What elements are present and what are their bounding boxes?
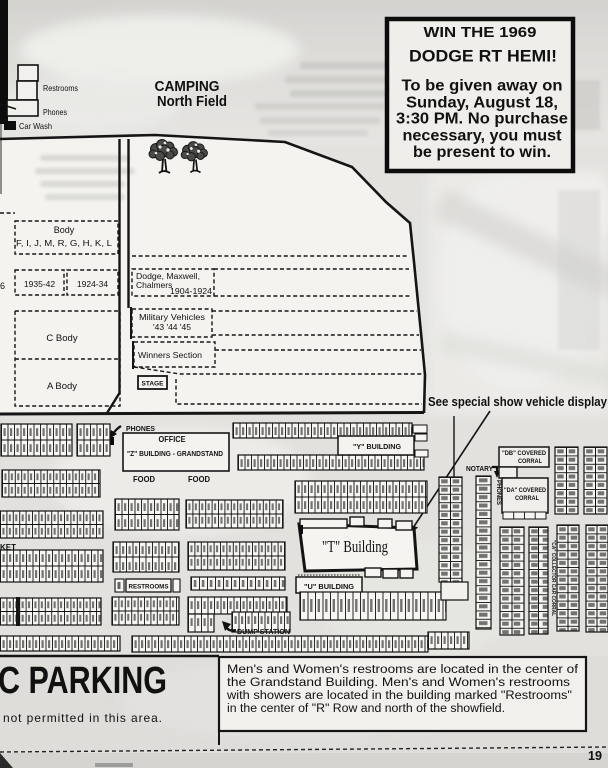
svg-text:6: 6 bbox=[0, 281, 5, 291]
svg-text:PHONES: PHONES bbox=[495, 480, 502, 505]
svg-text:Car Wash: Car Wash bbox=[19, 121, 52, 131]
svg-text:CORRAL: CORRAL bbox=[515, 495, 539, 502]
svg-text:1924-34: 1924-34 bbox=[77, 279, 108, 289]
svg-text:Phones: Phones bbox=[43, 107, 67, 117]
svg-text:with showers are located in th: with showers are located in the building… bbox=[226, 690, 572, 702]
svg-text:NOTARY: NOTARY bbox=[466, 466, 493, 473]
svg-text:F, I, J, M, R, G, H, K, L: F, I, J, M, R, G, H, K, L bbox=[16, 238, 112, 248]
svg-text:To be given away on: To be given away on bbox=[402, 78, 563, 95]
svg-text:See special show vehicle displ: See special show vehicle display bbox=[428, 394, 608, 409]
svg-text:RESTROOMS: RESTROOMS bbox=[129, 584, 169, 591]
svg-text:CAMPING: CAMPING bbox=[155, 79, 220, 95]
svg-text:DUMP STATION: DUMP STATION bbox=[237, 627, 290, 636]
svg-text:FOOD: FOOD bbox=[188, 474, 210, 484]
svg-text:"DA" COVERED: "DA" COVERED bbox=[504, 487, 546, 494]
svg-text:DODGE RT HEMI!: DODGE RT HEMI! bbox=[409, 47, 557, 66]
svg-text:Military Vehicles: Military Vehicles bbox=[139, 312, 205, 322]
svg-text:PHONES: PHONES bbox=[126, 424, 155, 433]
svg-text:STAGE: STAGE bbox=[142, 381, 165, 388]
svg-text:Men's and Women's restrooms ar: Men's and Women's restrooms are located … bbox=[227, 664, 579, 676]
svg-text:A Body: A Body bbox=[47, 381, 77, 392]
svg-text:necessary, you must: necessary, you must bbox=[403, 128, 563, 145]
svg-text:CORRAL: CORRAL bbox=[518, 458, 542, 465]
svg-text:1904-1924: 1904-1924 bbox=[170, 286, 212, 296]
svg-text:WIN THE 1969: WIN THE 1969 bbox=[424, 24, 537, 41]
svg-text:FOOD: FOOD bbox=[133, 474, 155, 484]
svg-text:Winners Section: Winners Section bbox=[138, 350, 202, 360]
svg-text:not permitted in this area.: not permitted in this area. bbox=[3, 711, 162, 725]
svg-text:19: 19 bbox=[588, 749, 602, 763]
svg-text:in the center of "R" Row and n: in the center of "R" Row and north of th… bbox=[227, 703, 505, 715]
svg-text:be present to win.: be present to win. bbox=[413, 144, 551, 161]
svg-text:'43 '44 '45: '43 '44 '45 bbox=[153, 322, 191, 332]
svg-text:1935-42: 1935-42 bbox=[24, 279, 55, 289]
svg-text:"U" BUILDING: "U" BUILDING bbox=[304, 582, 354, 591]
svg-text:Chalmers: Chalmers bbox=[136, 280, 172, 290]
svg-text:North Field: North Field bbox=[157, 94, 227, 110]
svg-text:Restrooms: Restrooms bbox=[43, 83, 78, 93]
svg-text:"Y" BUILDING: "Y" BUILDING bbox=[353, 442, 401, 451]
svg-text:OFFICE: OFFICE bbox=[159, 435, 187, 444]
svg-text:"T" Building: "T" Building bbox=[322, 537, 388, 556]
svg-text:the Grandstand Building. Men': the Grandstand Building. Men's and Women… bbox=[227, 677, 570, 689]
svg-text:"Z" BUILDING - GRANDSTAND: "Z" BUILDING - GRANDSTAND bbox=[127, 449, 224, 458]
svg-text:"CA" COLLECTOR CAR CORRAL: "CA" COLLECTOR CAR CORRAL bbox=[550, 540, 556, 616]
svg-text:C Body: C Body bbox=[46, 333, 77, 344]
svg-text:Body: Body bbox=[54, 225, 75, 235]
svg-text:"DB" COVERED: "DB" COVERED bbox=[502, 450, 546, 457]
svg-text:Sunday, August 18,: Sunday, August 18, bbox=[406, 95, 558, 112]
svg-text:C PARKING: C PARKING bbox=[0, 660, 167, 702]
svg-text:3:30 PM. No purchase: 3:30 PM. No purchase bbox=[396, 111, 568, 128]
